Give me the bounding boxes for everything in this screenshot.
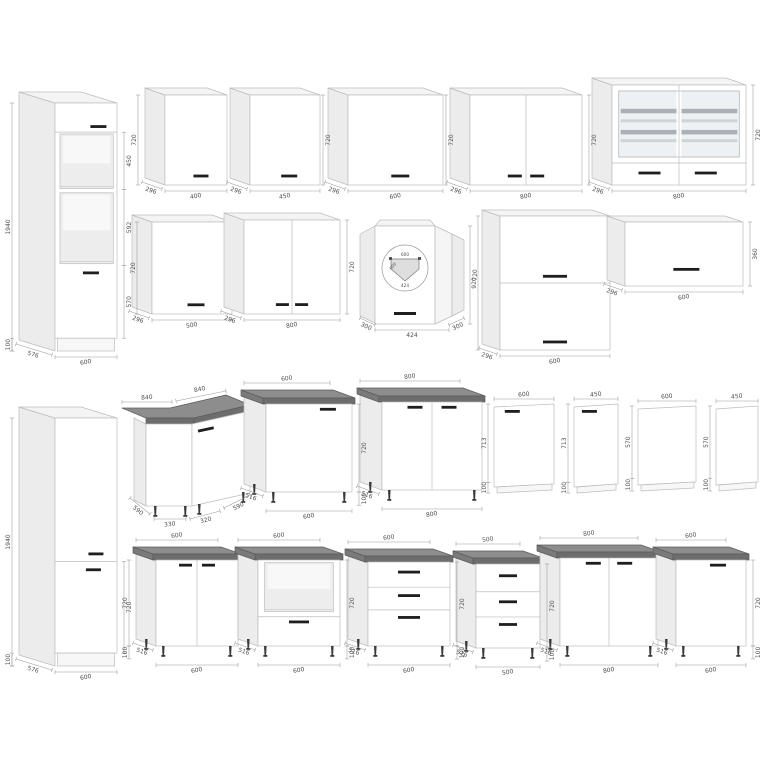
wall-cabinet-flip-600 — [607, 216, 743, 286]
svg-text:296: 296 — [449, 186, 462, 196]
svg-text:100: 100 — [625, 479, 632, 491]
svg-text:450: 450 — [731, 393, 743, 401]
svg-text:296: 296 — [327, 186, 340, 196]
svg-text:576: 576 — [26, 665, 39, 675]
svg-text:600: 600 — [402, 666, 415, 675]
svg-text:600: 600 — [302, 512, 315, 521]
svg-text:100: 100 — [5, 339, 12, 351]
base-cabinet-600-double — [133, 547, 241, 657]
svg-text:296: 296 — [480, 351, 493, 361]
wall-cabinet-800-double — [450, 88, 582, 185]
svg-text:296: 296 — [131, 315, 144, 325]
base-drawer-cabinet-600 — [345, 549, 453, 657]
svg-text:600: 600 — [401, 252, 409, 257]
svg-text:320: 320 — [199, 515, 212, 525]
svg-text:1940: 1940 — [5, 534, 12, 549]
svg-text:600: 600 — [79, 673, 92, 682]
base-cabinet-600-door — [241, 390, 355, 503]
svg-text:840: 840 — [193, 385, 206, 394]
svg-text:500: 500 — [501, 668, 514, 677]
wall-cabinet-500 — [132, 215, 232, 314]
end-panel-600 — [638, 406, 696, 491]
svg-text:600: 600 — [389, 192, 402, 201]
svg-text:600: 600 — [292, 666, 305, 675]
svg-text:920: 920 — [471, 277, 478, 289]
svg-text:720: 720 — [130, 262, 137, 274]
svg-text:100: 100 — [755, 647, 762, 659]
svg-text:400: 400 — [189, 192, 202, 201]
wall-corner-cabinet-600: 600600424 — [360, 220, 464, 324]
svg-text:713: 713 — [481, 437, 488, 449]
svg-text:360: 360 — [752, 248, 759, 260]
svg-text:800: 800 — [425, 510, 438, 519]
svg-text:100: 100 — [5, 654, 12, 666]
wall-cabinet-450 — [230, 88, 320, 185]
kitchen-cabinet-diagram: 6006004241940100450592570600576720400296… — [0, 0, 768, 768]
svg-text:600: 600 — [518, 391, 530, 399]
svg-text:576: 576 — [26, 350, 39, 360]
svg-text:570: 570 — [126, 296, 133, 308]
svg-text:570: 570 — [625, 436, 632, 448]
svg-text:424: 424 — [401, 283, 409, 288]
wall-cabinet-flip-double-600 — [482, 210, 610, 350]
svg-text:720: 720 — [448, 134, 455, 146]
svg-text:592: 592 — [126, 222, 133, 234]
svg-text:720: 720 — [591, 134, 598, 146]
base-oven-housing-600 — [235, 547, 343, 657]
svg-text:424: 424 — [406, 332, 418, 339]
svg-text:713: 713 — [561, 437, 568, 449]
wall-cabinet-400 — [145, 88, 227, 185]
svg-text:500: 500 — [185, 321, 198, 330]
svg-text:600: 600 — [677, 293, 690, 302]
svg-text:720: 720 — [325, 134, 332, 146]
svg-text:800: 800 — [602, 666, 615, 675]
end-panel-450 — [716, 406, 758, 491]
svg-text:590: 590 — [131, 504, 144, 517]
svg-text:720: 720 — [549, 600, 556, 612]
svg-text:100: 100 — [481, 482, 488, 494]
svg-text:800: 800 — [672, 192, 685, 201]
svg-text:100: 100 — [703, 479, 710, 491]
diagram-canvas: 6006004241940100450592570600576720400296… — [0, 0, 768, 768]
svg-text:100: 100 — [561, 482, 568, 494]
svg-text:450: 450 — [126, 155, 133, 167]
base-drawer-cabinet-500 — [453, 551, 543, 659]
svg-text:600: 600 — [685, 531, 697, 540]
svg-text:450: 450 — [278, 192, 291, 201]
svg-text:720: 720 — [361, 442, 368, 454]
svg-text:720: 720 — [349, 261, 356, 273]
svg-text:330: 330 — [164, 520, 176, 528]
svg-text:720: 720 — [131, 134, 138, 146]
svg-text:600: 600 — [661, 393, 673, 401]
svg-text:296: 296 — [229, 186, 242, 196]
base-corner-cabinet-840 — [122, 395, 250, 517]
svg-text:600: 600 — [273, 531, 285, 540]
svg-text:600: 600 — [79, 358, 92, 367]
wall-cabinet-800-glass — [592, 78, 746, 185]
svg-text:450: 450 — [590, 391, 602, 399]
dishwasher-front-450 — [574, 404, 618, 493]
svg-text:800: 800 — [285, 321, 298, 330]
base-cabinet-800-double — [357, 388, 485, 501]
svg-text:600: 600 — [171, 531, 183, 540]
base-cabinet-600-door-b — [653, 547, 749, 657]
svg-text:600: 600 — [704, 666, 717, 675]
svg-text:800: 800 — [583, 529, 595, 538]
svg-text:100: 100 — [122, 647, 129, 659]
svg-text:500: 500 — [482, 535, 494, 544]
svg-text:720: 720 — [755, 597, 762, 609]
wall-cabinet-600 — [328, 88, 443, 185]
svg-text:600: 600 — [190, 666, 203, 675]
svg-text:720: 720 — [755, 129, 762, 141]
svg-text:600: 600 — [281, 374, 293, 383]
svg-text:1940: 1940 — [5, 219, 12, 234]
svg-text:296: 296 — [144, 186, 157, 196]
wall-cabinet-800-double-b — [224, 213, 340, 314]
svg-text:296: 296 — [591, 186, 604, 196]
svg-text:720: 720 — [122, 597, 129, 609]
svg-text:296: 296 — [223, 315, 236, 325]
svg-text:800: 800 — [519, 192, 532, 201]
dishwasher-front-600 — [494, 404, 554, 493]
svg-text:600: 600 — [383, 533, 395, 542]
svg-text:720: 720 — [459, 598, 466, 610]
tall-fridge-housing-cabinet — [19, 407, 117, 666]
svg-text:800: 800 — [404, 372, 416, 381]
tall-oven-housing-cabinet — [19, 92, 117, 351]
svg-text:720: 720 — [349, 597, 356, 609]
svg-text:600: 600 — [548, 357, 561, 366]
svg-text:840: 840 — [141, 394, 153, 402]
svg-text:570: 570 — [703, 436, 710, 448]
